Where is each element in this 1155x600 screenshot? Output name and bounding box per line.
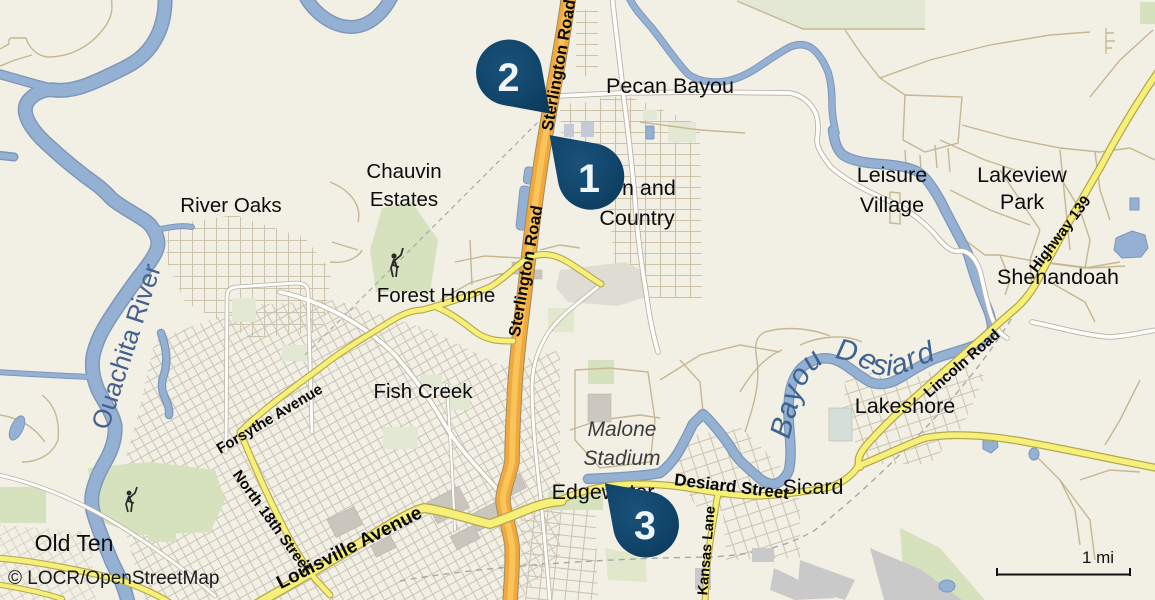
svg-text:Sicard: Sicard [783, 475, 844, 499]
svg-text:Stadium: Stadium [583, 447, 660, 470]
svg-text:n and: n and [622, 176, 676, 200]
svg-text:Pecan Bayou: Pecan Bayou [606, 74, 734, 98]
svg-text:Chauvin: Chauvin [366, 160, 441, 183]
svg-text:Lakeshore: Lakeshore [855, 394, 955, 418]
svg-text:Estates: Estates [370, 188, 438, 211]
svg-text:3: 3 [634, 504, 656, 548]
svg-text:Park: Park [1000, 190, 1044, 214]
svg-text:Fish Creek: Fish Creek [373, 380, 473, 403]
svg-text:Forest Home: Forest Home [377, 284, 495, 307]
svg-text:Lakeview: Lakeview [977, 163, 1067, 187]
svg-text:Village: Village [860, 193, 924, 217]
svg-text:River Oaks: River Oaks [180, 194, 281, 217]
svg-text:1 mi: 1 mi [1082, 548, 1114, 567]
svg-text:Country: Country [599, 206, 675, 230]
svg-text:Shenandoah: Shenandoah [997, 265, 1119, 289]
svg-text:Malone: Malone [588, 418, 657, 441]
svg-text:Old Ten: Old Ten [35, 530, 114, 556]
svg-text:2: 2 [498, 56, 520, 100]
svg-text:1: 1 [578, 157, 600, 201]
svg-text:© LOCR/OpenStreetMap: © LOCR/OpenStreetMap [8, 568, 219, 589]
svg-text:Leisure: Leisure [857, 163, 928, 187]
